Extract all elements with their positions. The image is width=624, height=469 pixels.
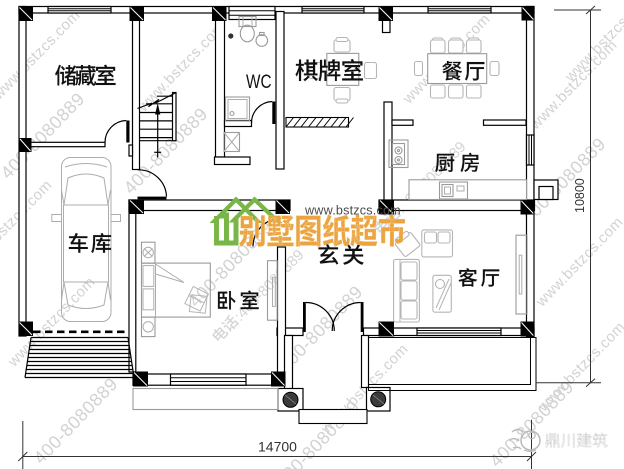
svg-text:www.bstzcs.com: www.bstzcs.com bbox=[304, 204, 401, 218]
svg-text:10800: 10800 bbox=[573, 178, 587, 213]
svg-text:WC: WC bbox=[246, 71, 272, 93]
svg-text:14700: 14700 bbox=[258, 439, 297, 455]
